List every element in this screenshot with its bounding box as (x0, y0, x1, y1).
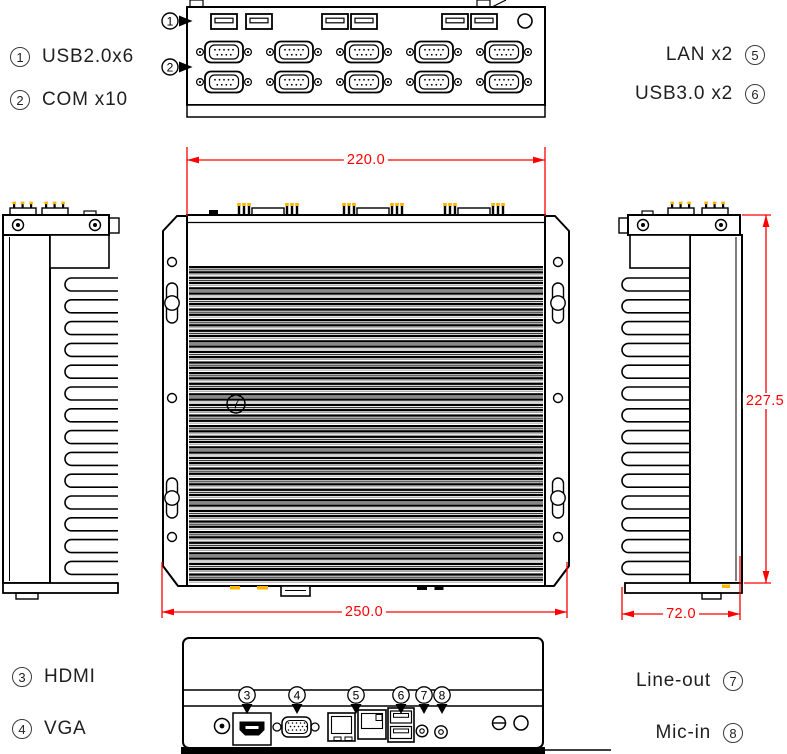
dimension-label-side-height: 227.5 (743, 393, 787, 409)
legend-text-com: COM x10 (42, 89, 128, 111)
legend-item-lineout: Line-out 7 (636, 670, 743, 692)
circled-number-8-icon: 8 (723, 723, 743, 743)
svg-text:5: 5 (353, 689, 360, 703)
dimension-label-bottom-width: 250.0 (342, 604, 386, 620)
front-view: 7 (163, 203, 569, 596)
legend-text-lineout: Line-out (636, 670, 711, 692)
dimension-label-top-width: 220.0 (344, 152, 388, 168)
svg-text:7: 7 (421, 689, 428, 703)
svg-text:7: 7 (233, 398, 240, 412)
legend-item-hdmi: 3 HDMI (12, 666, 96, 688)
circled-number-7-icon: 7 (723, 671, 743, 691)
legend-item-usb2: 1 USB2.0x6 (10, 46, 134, 68)
legend-text-lan: LAN x2 (666, 44, 733, 66)
circled-number-6-icon: 6 (745, 84, 765, 104)
legend-bottom-left: 3 HDMI 4 VGA (12, 666, 96, 740)
hdmi-port-icon (233, 713, 271, 745)
bottom-panel-view: 345678 (181, 638, 611, 754)
svg-text:8: 8 (439, 689, 446, 703)
svg-text:3: 3 (244, 689, 251, 703)
svg-text:4: 4 (294, 689, 301, 703)
device-views-drawing: 127345678 (0, 0, 787, 754)
legend-item-com: 2 COM x10 (10, 89, 134, 111)
legend-text-micin: Mic-in (656, 722, 711, 744)
legend-top-right: LAN x2 5 USB3.0 x2 6 (635, 44, 765, 105)
left-side-view (3, 202, 119, 599)
svg-text:1: 1 (167, 15, 174, 29)
legend-text-usb2: USB2.0x6 (42, 46, 134, 68)
right-side-view (619, 202, 742, 599)
circled-number-2-icon: 2 (10, 90, 30, 110)
circled-number-4-icon: 4 (12, 719, 32, 739)
legend-bottom-right: Line-out 7 Mic-in 8 (636, 670, 743, 744)
top-panel-view: 12 (162, 0, 545, 117)
legend-text-usb3: USB3.0 x2 (635, 83, 733, 105)
lan-port-icon (358, 710, 386, 739)
technical-drawing-page: 127345678 1 USB2.0x6 2 COM x10 LAN x2 5 … (0, 0, 787, 754)
svg-text:2: 2 (167, 61, 174, 75)
lan-port-icon (328, 713, 355, 741)
legend-text-hdmi: HDMI (44, 666, 96, 688)
legend-item-lan: LAN x2 5 (666, 44, 765, 66)
legend-item-usb3: USB3.0 x2 6 (635, 83, 765, 105)
circled-number-3-icon: 3 (12, 667, 32, 687)
circled-number-1-icon: 1 (10, 47, 30, 67)
dimension-label-side-depth: 72.0 (663, 606, 699, 622)
legend-top-left: 1 USB2.0x6 2 COM x10 (10, 46, 134, 111)
legend-item-vga: 4 VGA (12, 718, 96, 740)
legend-item-micin: Mic-in 8 (656, 722, 743, 744)
svg-text:6: 6 (398, 689, 405, 703)
legend-text-vga: VGA (44, 718, 87, 740)
circled-number-5-icon: 5 (745, 45, 765, 65)
